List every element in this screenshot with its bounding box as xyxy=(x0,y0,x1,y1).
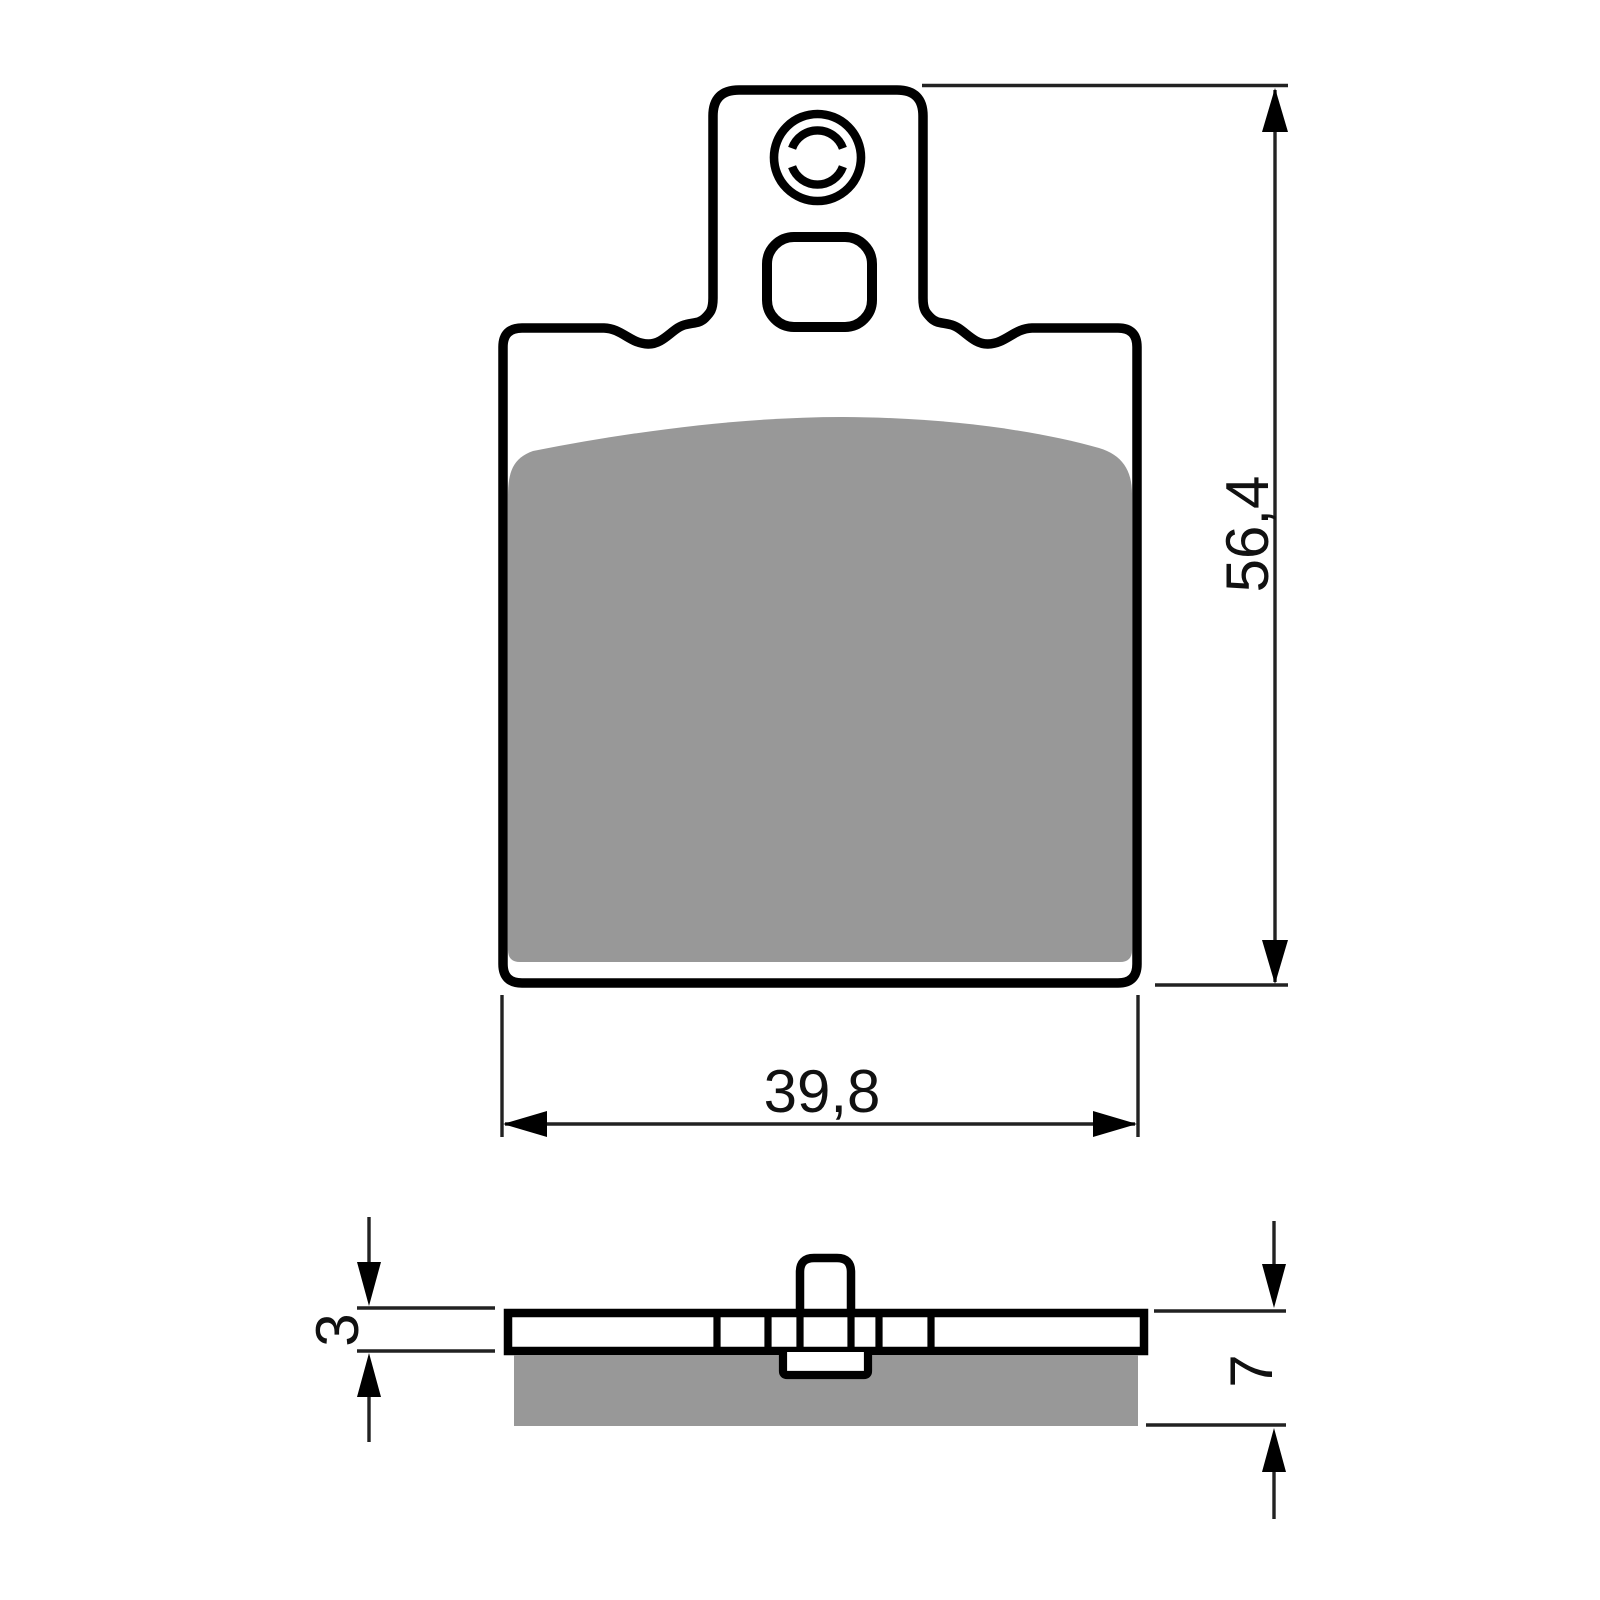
svg-text:56,4: 56,4 xyxy=(1214,476,1281,593)
svg-text:7: 7 xyxy=(1218,1354,1285,1387)
svg-text:39,8: 39,8 xyxy=(764,1058,881,1125)
svg-text:3: 3 xyxy=(304,1313,371,1346)
